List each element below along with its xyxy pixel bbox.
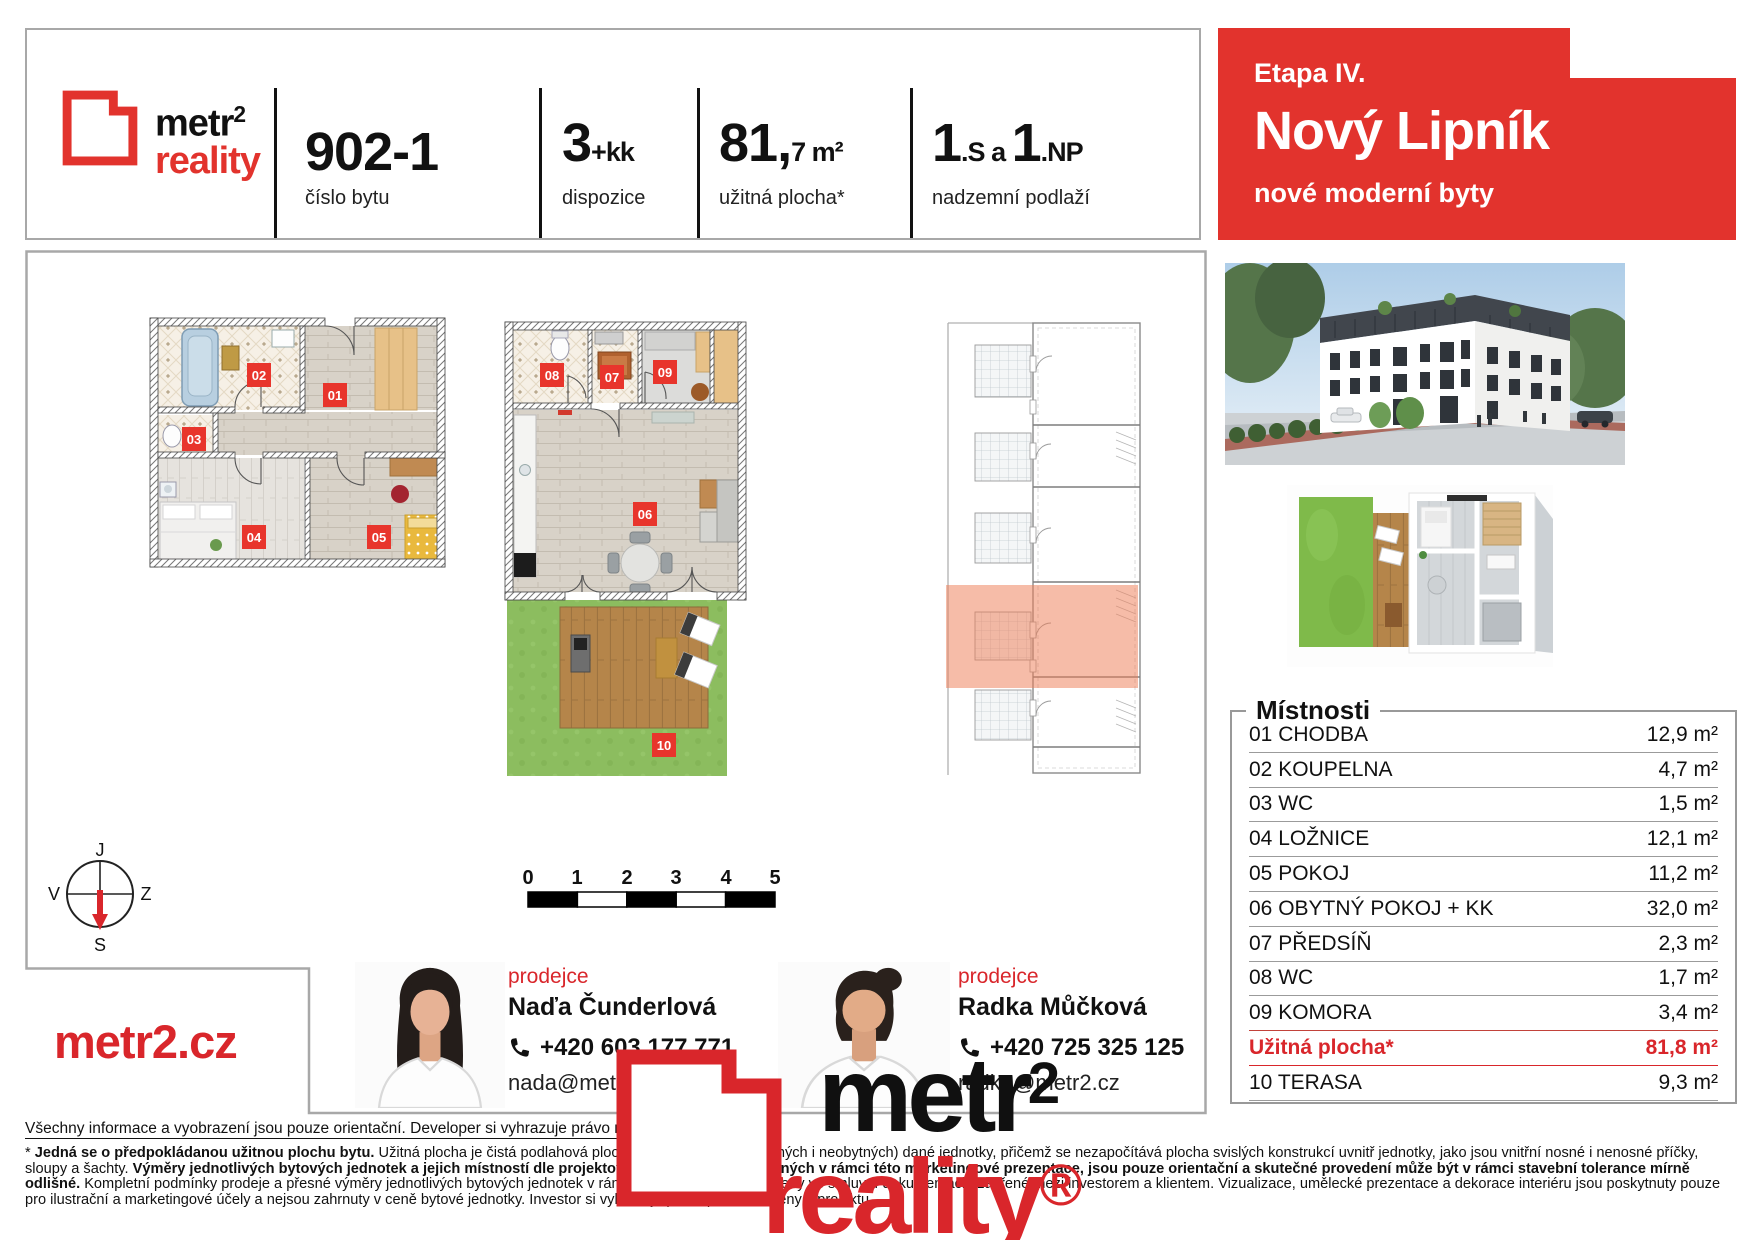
footer-note: Všechny informace a vyobrazení jsou pouz… — [25, 1120, 685, 1138]
agent-name: Naďa Čunderlová — [508, 995, 734, 1020]
plan-label-05: 05 — [367, 525, 391, 549]
floors-conjunction: a — [985, 137, 1012, 167]
table-row-usable-area: Užitná plocha*81,8 m² — [1249, 1031, 1718, 1066]
agent-card-1: prodejce Naďa Čunderlová +420 603 177 77… — [508, 966, 734, 1094]
agent-phone[interactable]: +420 603 177 771 — [508, 1036, 734, 1060]
area-label: užitná plocha* — [719, 187, 845, 210]
stat-layout: 3+kk dispozice — [562, 60, 645, 210]
project-banner: Etapa IV. Nový Lipník nové moderní byty — [1218, 28, 1736, 240]
agent-phone[interactable]: +420 725 325 125 — [958, 1036, 1184, 1060]
header-divider — [910, 88, 913, 238]
svg-text:5: 5 — [769, 867, 780, 889]
agent-photo-2 — [778, 962, 950, 1108]
stat-area: 81,7 m² užitná plocha* — [719, 60, 845, 210]
plan-label-08: 08 — [540, 363, 564, 387]
compass: J Z S V — [44, 833, 156, 958]
table-row: 09 KOMORA3,4 m² — [1249, 996, 1718, 1031]
table-row: 03 WC1,5 m² — [1249, 788, 1718, 823]
agent-email[interactable]: nada@metr2.cz — [508, 1072, 734, 1094]
plan-label-04: 04 — [242, 525, 266, 549]
stat-floors: 1.S a 1.NP nadzemní podlaží — [932, 60, 1090, 210]
logo-word-reality: reality — [155, 143, 260, 180]
logo-sup: 2 — [233, 101, 245, 127]
floors-suffix-1: .S — [961, 137, 985, 167]
floors-value-2: 1 — [1012, 113, 1041, 173]
agent-role: prodejce — [508, 966, 734, 987]
compass-left: V — [48, 884, 60, 904]
plan-label-06: 06 — [633, 502, 657, 526]
header-divider — [539, 88, 542, 238]
svg-text:0: 0 — [522, 867, 533, 889]
agent-role: prodejce — [958, 966, 1184, 987]
phone-icon — [508, 1037, 530, 1059]
table-row: 10 TERASA9,3 m² — [1249, 1066, 1718, 1101]
svg-text:4: 4 — [720, 867, 732, 889]
agent-name: Radka Můčková — [958, 995, 1184, 1020]
agent-card-2: prodejce Radka Můčková +420 725 325 125 … — [958, 966, 1184, 1094]
header-divider — [697, 88, 700, 238]
banner-phase: Etapa IV. — [1254, 58, 1366, 89]
table-row: 01 CHODBA12,9 m² — [1249, 718, 1718, 753]
plan-label-10: 10 — [652, 733, 676, 757]
floors-label: nadzemní podlaží — [932, 187, 1090, 210]
area-suffix: 7 m² — [791, 137, 843, 167]
rooms-table-body: 01 CHODBA12,9 m² 02 KOUPELNA4,7 m² 03 WC… — [1249, 718, 1718, 1101]
unit-number-label: číslo bytu — [305, 187, 438, 210]
layout-value: 3 — [562, 113, 591, 173]
brand-logo-icon — [60, 88, 140, 168]
compass-bottom: S — [94, 935, 106, 955]
unit-3d-render — [1287, 485, 1553, 667]
building-render-photo — [1225, 263, 1625, 465]
agent-email[interactable]: radka@metr2.cz — [958, 1072, 1184, 1094]
plan-label-02: 02 — [247, 363, 271, 387]
stat-unit-number: 902-1 číslo bytu — [305, 60, 438, 210]
table-row: 07 PŘEDSÍŇ2,3 m² — [1249, 927, 1718, 962]
layout-label: dispozice — [562, 187, 645, 210]
plan-label-09: 09 — [653, 360, 677, 384]
banner-tagline: nové moderní byty — [1254, 178, 1494, 209]
floors-suffix-2: .NP — [1041, 137, 1083, 167]
brand-logo-text: metr2 reality — [155, 96, 260, 180]
header-divider — [274, 88, 277, 238]
flyer-page: metr2 reality 902-1 číslo bytu 3+kk disp… — [0, 0, 1754, 1240]
table-row: 06 OBYTNÝ POKOJ + KK32,0 m² — [1249, 892, 1718, 927]
logo-word-metr: metr — [155, 103, 233, 145]
table-row: 04 LOŽNICE12,1 m² — [1249, 822, 1718, 857]
scale-bar: 0 1 2 3 4 5 — [520, 858, 782, 912]
phone-icon — [958, 1037, 980, 1059]
website-link[interactable]: metr2.cz — [54, 1014, 237, 1069]
plan-label-07: 07 — [600, 365, 624, 389]
unit-number-value: 902-1 — [305, 127, 438, 177]
header-box: metr2 reality 902-1 číslo bytu 3+kk disp… — [25, 28, 1201, 240]
svg-text:2: 2 — [621, 867, 632, 889]
table-row: 02 KOUPELNA4,7 m² — [1249, 753, 1718, 788]
floorplan-upper — [503, 320, 748, 778]
highlighted-unit — [946, 585, 1138, 688]
plan-label-01: 01 — [323, 383, 347, 407]
svg-text:1: 1 — [571, 867, 582, 889]
table-row: 05 POKOJ11,2 m² — [1249, 857, 1718, 892]
floors-value-1: 1 — [932, 113, 961, 173]
compass-top: J — [96, 840, 105, 860]
svg-text:3: 3 — [670, 867, 681, 889]
rooms-table: Místnosti 01 CHODBA12,9 m² 02 KOUPELNA4,… — [1230, 710, 1737, 1104]
compass-right: Z — [141, 884, 152, 904]
area-value: 81, — [719, 113, 791, 173]
banner-project-name: Nový Lipník — [1254, 100, 1549, 162]
agent-photo-1 — [355, 962, 505, 1108]
site-plan — [940, 318, 1207, 778]
footer-disclaimer: * Jedná se o předpokládanou užitnou ploc… — [25, 1146, 1737, 1208]
table-row: 08 WC1,7 m² — [1249, 962, 1718, 997]
layout-suffix: +kk — [591, 137, 634, 167]
plan-label-03: 03 — [182, 427, 206, 451]
